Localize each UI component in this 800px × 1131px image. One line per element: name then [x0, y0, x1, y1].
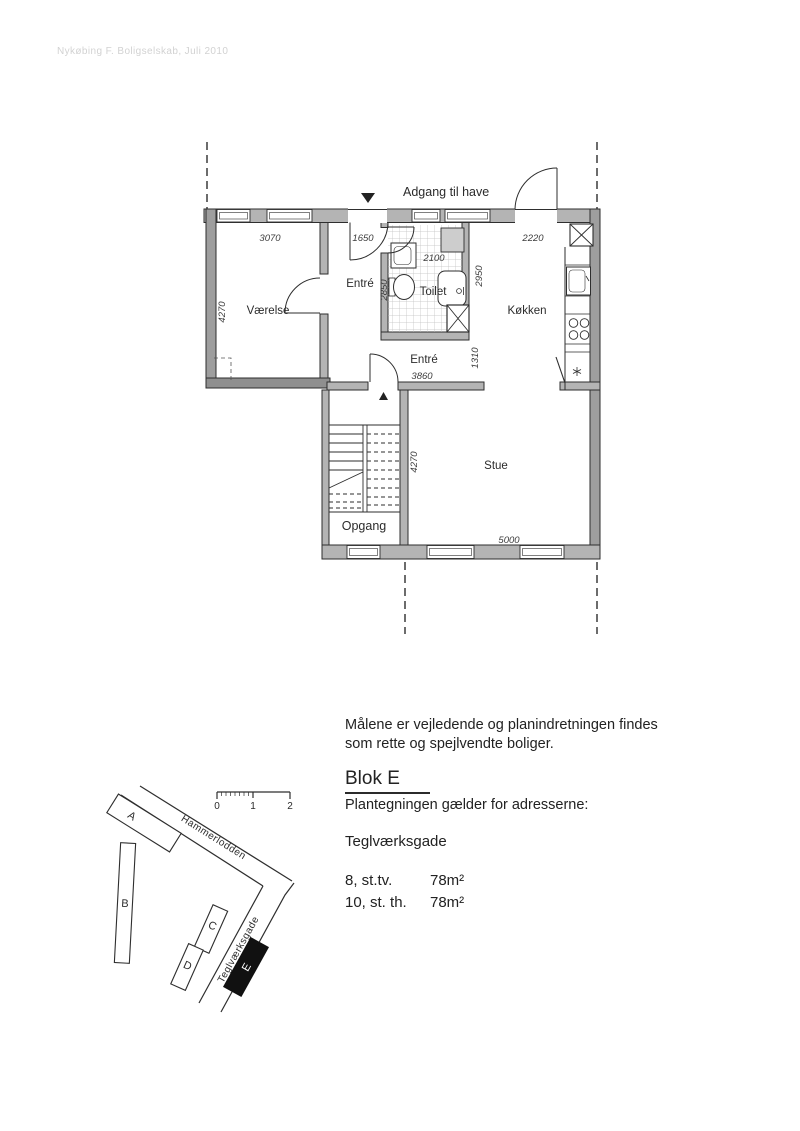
unit-address: 8, st.tv. — [345, 870, 430, 892]
building-b-label: B — [121, 898, 129, 910]
room-label-entre-upper: Entré — [346, 278, 374, 290]
unit-list: 8, st.tv. 78m² 10, st. th. 78m² — [345, 870, 735, 914]
dim-koekken-width: 2220 — [521, 233, 544, 244]
note-line-1: Målene er vejledende og planindretningen… — [345, 717, 658, 733]
stove-icon — [569, 319, 589, 340]
unit-address: 10, st. th. — [345, 892, 430, 914]
scale-tick-1: 1 — [250, 801, 256, 812]
room-label-entre-lower: Entré — [410, 354, 438, 366]
room-label-opgang: Opgang — [342, 519, 387, 533]
kitchen-fixtures — [556, 224, 593, 390]
note-text: Målene er vejledende og planindretningen… — [345, 716, 735, 754]
garden-access-label: Adgang til have — [403, 185, 489, 199]
main-entrance-arrow-icon — [379, 392, 388, 400]
subtitle-text: Plantegningen gælder for adresserne: — [345, 797, 735, 813]
dim-stue-depth: 4270 — [409, 451, 420, 473]
dim-vaerelse-width: 3070 — [259, 233, 281, 244]
info-block: Målene er vejledende og planindretningen… — [345, 716, 735, 914]
scale-bar — [217, 792, 290, 799]
fridge-icon — [573, 367, 581, 376]
wc-icon — [394, 275, 415, 300]
floor-drain-icon — [457, 289, 462, 294]
building-d: D — [171, 944, 204, 991]
dim-hall-length: 3860 — [411, 371, 433, 382]
dim-hall-width: 1310 — [470, 347, 481, 369]
room-label-vaerelse: Værelse — [247, 305, 290, 317]
dim-toilet-depth: 2850 — [379, 279, 390, 302]
unit-row: 8, st.tv. 78m² — [345, 870, 735, 892]
room-label-toilet: Toilet — [420, 286, 448, 298]
block-title: Blok E — [345, 768, 430, 794]
room-label-stue: Stue — [484, 460, 508, 472]
street-label-hammerlodden: Hammerlodden — [179, 814, 248, 863]
unit-row: 10, st. th. 78m² — [345, 892, 735, 914]
watermark-text: Nykøbing F. Boligselskab, Juli 2010 — [57, 46, 228, 57]
unit-area: 78m² — [430, 892, 464, 914]
dim-stue-width: 5000 — [498, 535, 520, 546]
windows-bottom — [347, 546, 564, 559]
garden-entrance-arrow-icon — [361, 193, 375, 203]
site-map: 0 1 2 Hammerlodden Teglværksgade A B C D — [100, 770, 315, 1015]
kitchen-door-leaf — [556, 357, 565, 383]
building-b: B — [114, 843, 135, 964]
unit-area: 78m² — [430, 870, 464, 892]
building-a: A — [107, 794, 181, 852]
street-name-text: Teglværksgade — [345, 833, 735, 850]
room-label-koekken: Køkken — [508, 305, 547, 317]
floor-plan: Adgang til have Værelse Entré Toilet Køk… — [190, 132, 610, 647]
closet-dashed-mark — [214, 358, 231, 380]
scale-tick-0: 0 — [214, 801, 220, 812]
scanned-floorplan-page: Nykøbing F. Boligselskab, Juli 2010 — [0, 0, 800, 1131]
building-c: C — [194, 905, 227, 954]
dim-vaerelse-depth: 4270 — [217, 301, 228, 323]
dim-entre-width: 1650 — [352, 233, 374, 244]
shower-unit-icon — [441, 228, 464, 252]
staircase — [329, 425, 400, 512]
dim-koekken-depth: 2950 — [474, 265, 485, 288]
dim-toilet-width: 2100 — [422, 253, 445, 264]
scale-tick-2: 2 — [287, 801, 293, 812]
note-line-2: som rette og spejlvendte boliger. — [345, 736, 554, 752]
